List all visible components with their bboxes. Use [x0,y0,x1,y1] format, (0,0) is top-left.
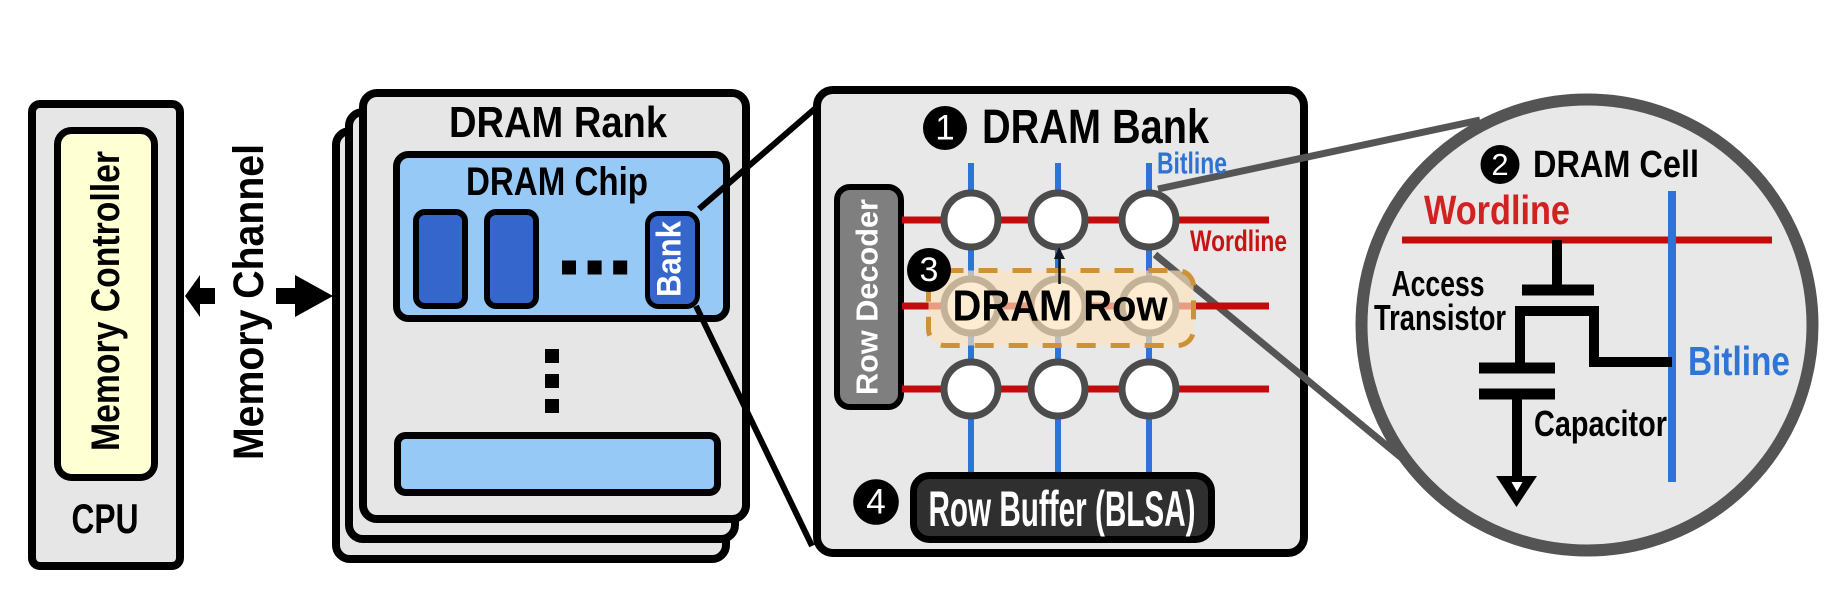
svg-text:Bank: Bank [651,221,689,297]
svg-text:DRAM Row: DRAM Row [953,282,1169,331]
svg-text:2: 2 [1491,147,1508,182]
svg-text:4: 4 [866,483,885,522]
svg-text:Memory Channel: Memory Channel [225,144,273,460]
svg-text:Capacitor: Capacitor [1534,403,1667,444]
svg-text:Bitline: Bitline [1688,338,1790,384]
svg-text:Memory Controller: Memory Controller [84,151,128,451]
svg-text:CPU: CPU [72,495,139,542]
svg-text:Row Decoder: Row Decoder [850,199,885,395]
svg-text:DRAM Chip: DRAM Chip [466,160,648,204]
svg-text:Wordline: Wordline [1190,225,1287,258]
svg-text:3: 3 [920,251,939,289]
svg-text:Transistor: Transistor [1374,297,1506,338]
svg-text:Row Buffer (BLSA): Row Buffer (BLSA) [929,481,1196,537]
svg-text:Bitline: Bitline [1157,146,1227,181]
svg-text:DRAM Rank: DRAM Rank [449,98,667,147]
svg-text:DRAM Cell: DRAM Cell [1533,144,1699,186]
svg-text:1: 1 [935,109,954,148]
svg-text:Wordline: Wordline [1424,187,1570,233]
